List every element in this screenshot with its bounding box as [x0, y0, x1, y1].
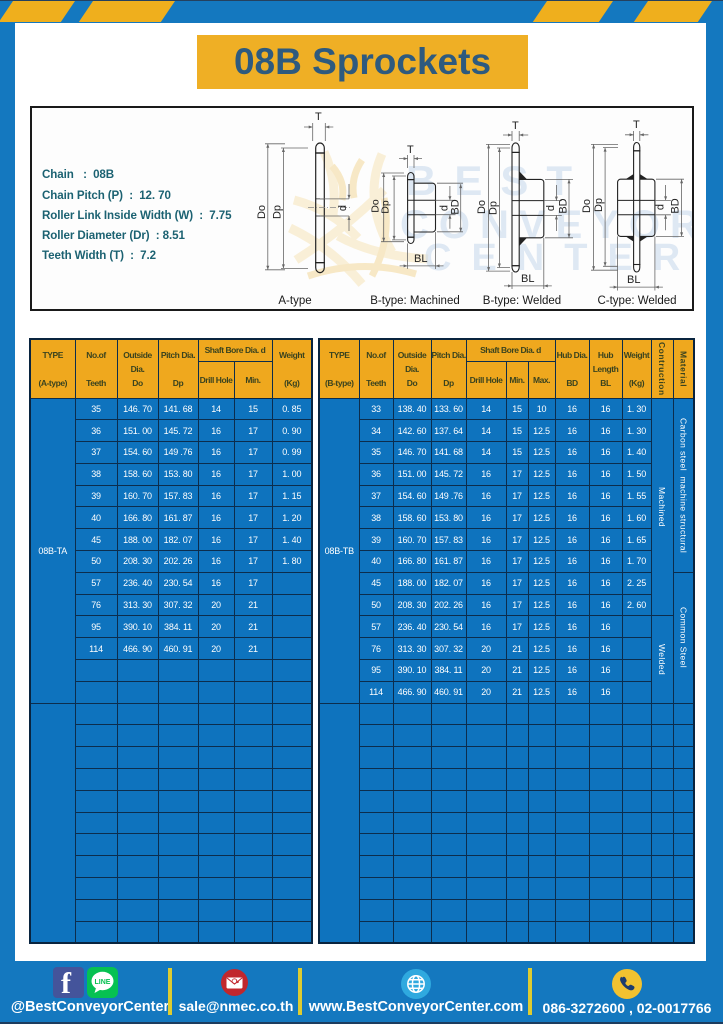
- svg-text:Do: Do: [581, 199, 593, 213]
- svg-text:BL: BL: [521, 273, 534, 285]
- svg-text:T: T: [633, 119, 640, 131]
- svg-text:B-type: Machined: B-type: Machined: [370, 295, 460, 307]
- svg-text:Roller Diameter (Dr) : 8.51: Roller Diameter (Dr) : 8.51: [42, 229, 185, 242]
- svg-text:Dp: Dp: [488, 201, 500, 215]
- svg-text:BD: BD: [670, 198, 682, 213]
- svg-text:Dp: Dp: [379, 200, 391, 214]
- svg-text:BEST: BEST: [406, 157, 590, 204]
- svg-text:Do: Do: [476, 200, 488, 214]
- svg-text:T: T: [315, 111, 322, 123]
- svg-text:CENTER: CENTER: [424, 237, 692, 279]
- svg-text:T: T: [407, 144, 414, 156]
- svg-text:Chain : 08B: Chain : 08B: [42, 168, 114, 181]
- svg-text:BL: BL: [627, 274, 640, 286]
- svg-text:Teeth Width (T) : 7.2: Teeth Width (T) : 7.2: [42, 249, 156, 262]
- svg-text:Dp: Dp: [272, 205, 284, 219]
- svg-text:A-type: A-type: [278, 295, 311, 307]
- svg-text:BD: BD: [449, 199, 461, 214]
- svg-text:BL: BL: [414, 253, 427, 265]
- svg-text:Roller Link Inside Width (W): Roller Link Inside Width (W) : 7.75: [42, 209, 232, 222]
- svg-text:d: d: [337, 205, 349, 211]
- svg-text:T: T: [512, 120, 519, 132]
- svg-text:BD: BD: [557, 198, 569, 213]
- svg-text:Do: Do: [256, 205, 268, 219]
- svg-text:d: d: [545, 205, 557, 211]
- svg-text:B-type: Welded: B-type: Welded: [483, 295, 561, 307]
- svg-text:d: d: [655, 204, 667, 210]
- svg-text:Chain Pitch (P) : 12. 70: Chain Pitch (P) : 12. 70: [42, 189, 171, 202]
- svg-text:Dp: Dp: [593, 198, 605, 212]
- svg-text:C-type: Welded: C-type: Welded: [597, 295, 676, 307]
- svg-text:LINE: LINE: [95, 979, 111, 986]
